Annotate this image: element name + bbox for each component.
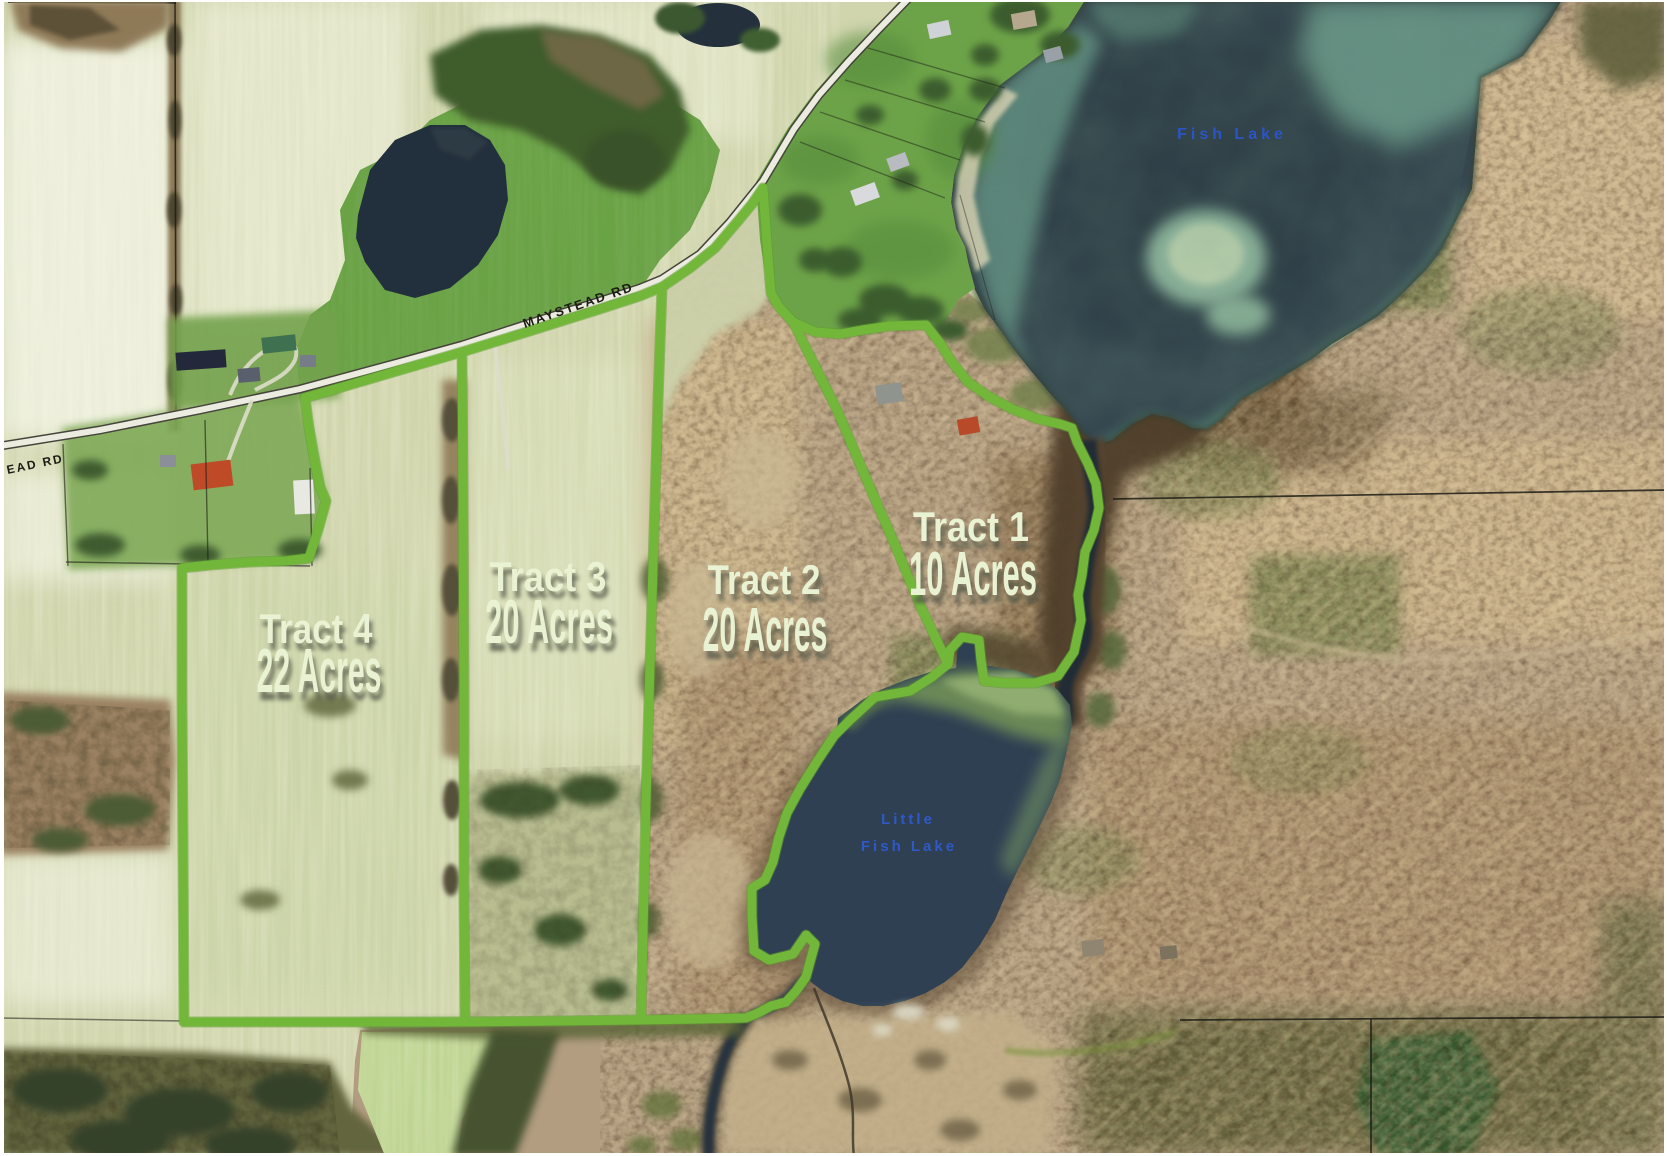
svg-text:Little: Little	[881, 811, 935, 828]
svg-text:20 Acres: 20 Acres	[485, 588, 613, 657]
svg-text:22 Acres: 22 Acres	[257, 637, 382, 706]
svg-text:10 Acres: 10 Acres	[909, 540, 1037, 609]
svg-text:Fish Lake: Fish Lake	[1177, 126, 1287, 143]
svg-text:Fish Lake: Fish Lake	[861, 838, 957, 855]
svg-text:20 Acres: 20 Acres	[703, 596, 828, 665]
